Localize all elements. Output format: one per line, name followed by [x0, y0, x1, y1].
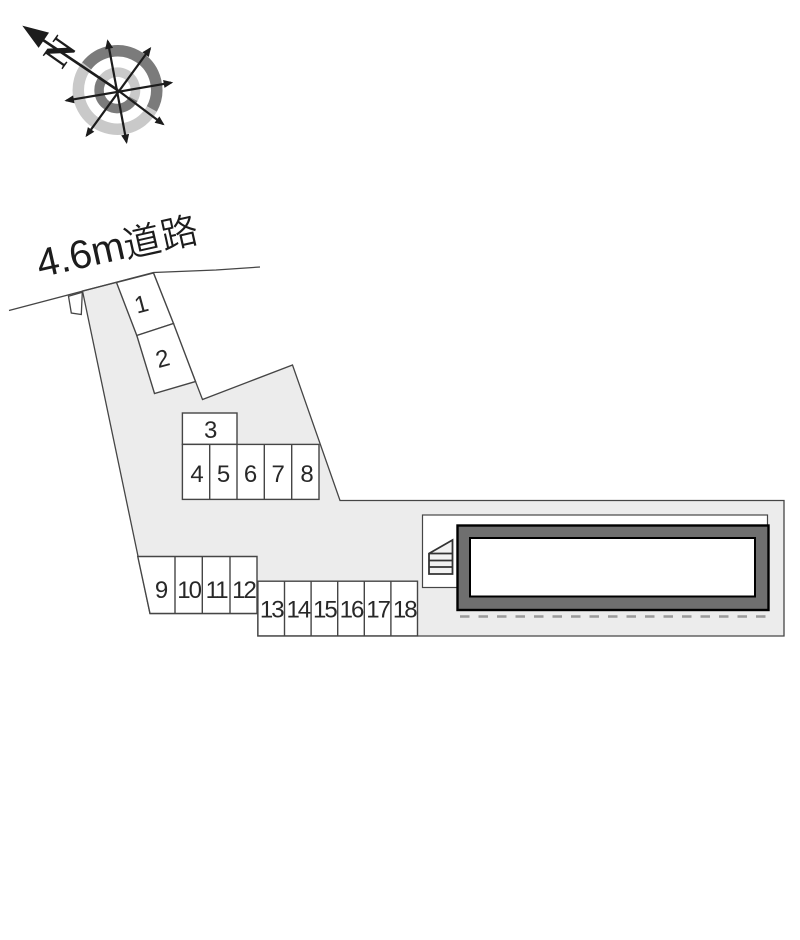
svg-text:15: 15 [313, 597, 337, 624]
svg-text:14: 14 [286, 597, 310, 624]
svg-text:11: 11 [206, 577, 229, 604]
svg-text:4: 4 [190, 461, 203, 488]
svg-text:10: 10 [177, 577, 201, 604]
svg-text:3: 3 [204, 417, 217, 444]
svg-text:18: 18 [393, 597, 417, 624]
svg-text:16: 16 [340, 597, 364, 624]
svg-text:12: 12 [232, 577, 256, 604]
svg-text:6: 6 [244, 461, 257, 488]
svg-text:9: 9 [155, 577, 168, 604]
svg-text:5: 5 [217, 461, 230, 488]
svg-text:17: 17 [366, 597, 390, 624]
svg-text:13: 13 [260, 597, 284, 624]
svg-text:4.6m: 4.6m [32, 224, 128, 286]
svg-text:8: 8 [300, 461, 313, 488]
svg-text:7: 7 [272, 461, 285, 488]
